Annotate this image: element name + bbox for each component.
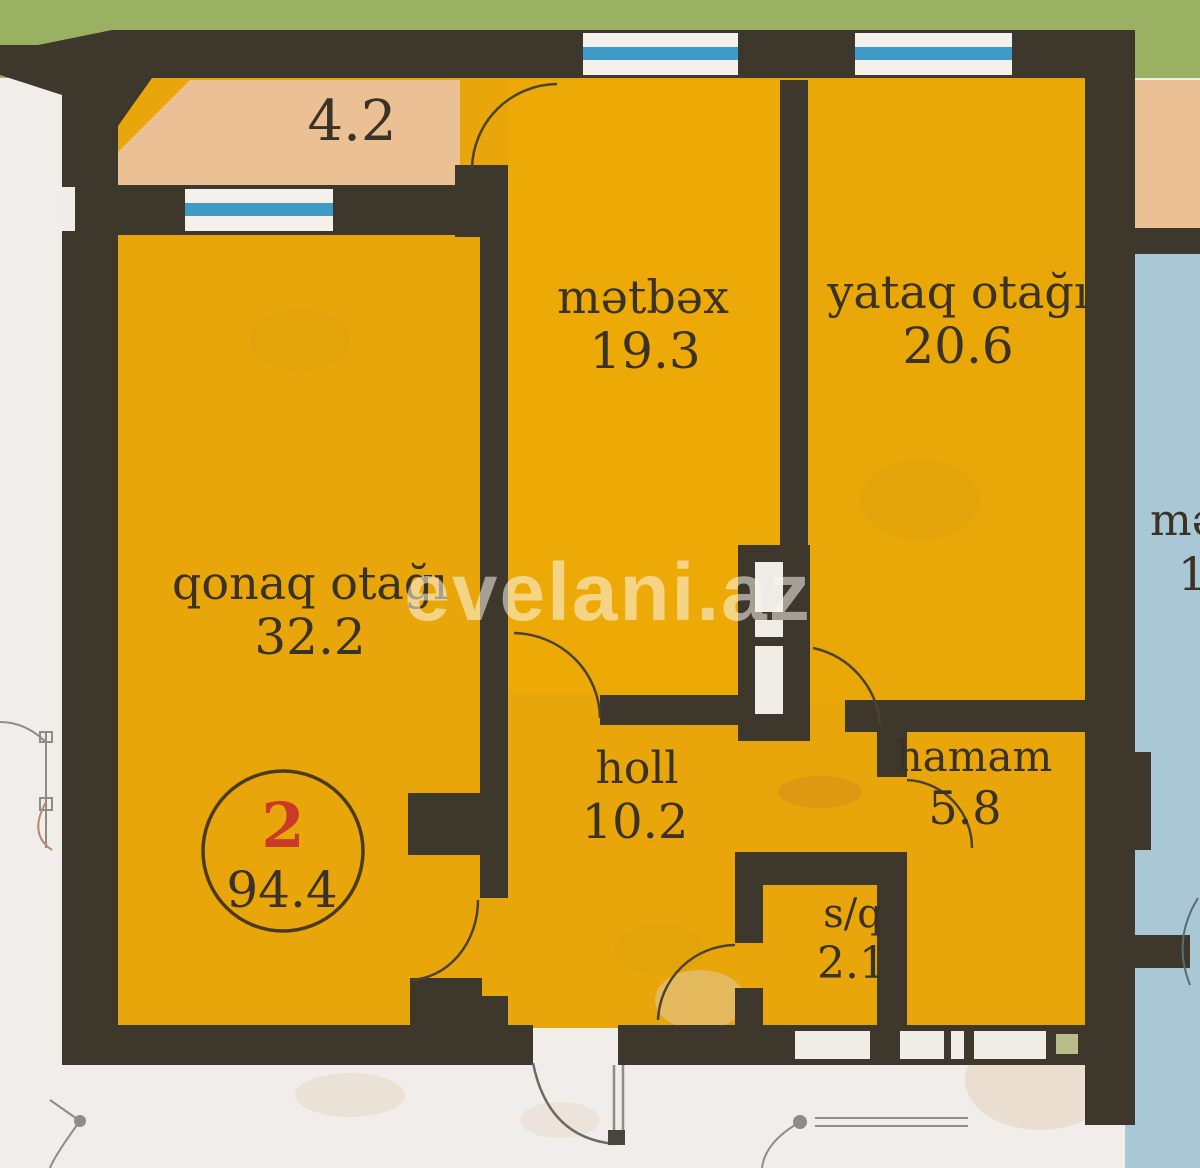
stain	[250, 310, 350, 370]
neighbor-balcony-area	[1135, 80, 1200, 230]
vent-slot	[900, 1031, 944, 1059]
wall-living-divider	[480, 165, 508, 898]
vent-slot-green	[1056, 1034, 1078, 1054]
kitchen-area: 19.3	[589, 322, 700, 380]
wc-label: s/q	[823, 891, 883, 937]
balcony-area-label: 4.2	[307, 89, 396, 154]
wall-living-divider-bottom	[480, 996, 508, 1028]
wc-area: 2.1	[817, 938, 887, 989]
bedroom-floor-tint	[808, 80, 1085, 700]
floorplan-photo: 4.2 mətbəx 19.3 yataq otağı 20.6 qonaq o…	[0, 0, 1200, 1168]
bathroom-area: 5.8	[928, 781, 1001, 835]
wall-stub-right-a	[1135, 752, 1151, 850]
vent-slot	[795, 1031, 870, 1059]
wall-pilaster-lower	[410, 978, 482, 1028]
kitchen-label: mətbəx	[557, 270, 729, 324]
window-glass	[583, 47, 738, 60]
vent-slot	[974, 1031, 1046, 1059]
hall-label: holl	[596, 743, 679, 794]
unit-total-area: 94.4	[226, 861, 337, 919]
living-room-window	[185, 189, 333, 231]
watermark-text: evelani.az	[404, 547, 811, 638]
stain	[615, 925, 705, 975]
bathroom-label: hamam	[896, 732, 1053, 781]
unit-number: 2	[261, 789, 304, 862]
wall-bottom-middle	[618, 1025, 790, 1065]
wall-neighbor-divider	[1135, 228, 1200, 254]
entrance-door-hinge	[608, 1130, 625, 1145]
wall-kitchen-bedroom	[780, 80, 808, 550]
window-glass	[185, 203, 333, 216]
stain	[655, 970, 745, 1030]
wall-right	[1085, 30, 1135, 1125]
wall-wc-top	[735, 852, 907, 885]
shaft-slot	[755, 646, 783, 714]
wall-bathroom-top	[845, 700, 1085, 732]
floorplan-drawing: 4.2 mətbəx 19.3 yataq otağı 20.6 qonaq o…	[0, 0, 1200, 1168]
stain	[295, 1073, 405, 1117]
wall-wc-left-lower	[735, 988, 763, 1025]
stain	[778, 776, 862, 808]
neighbor-room-label: mə	[1150, 495, 1200, 546]
hall-area: 10.2	[582, 794, 689, 850]
neighbor-room-area	[1125, 254, 1200, 1168]
left-wall-notch	[62, 187, 75, 231]
wall-left	[62, 122, 118, 1065]
neighbor-room-area: 19	[1178, 547, 1200, 601]
kitchen-window	[583, 33, 738, 75]
wall-pilaster-upper	[408, 793, 482, 855]
living-room-area: 32.2	[254, 608, 365, 666]
bedroom-area: 20.6	[902, 317, 1013, 375]
window-glass	[855, 47, 1012, 60]
stain	[860, 460, 980, 540]
vent-grate-slots	[795, 1031, 1078, 1059]
vent-slot	[951, 1031, 964, 1059]
bedroom-label: yataq otağı	[826, 265, 1088, 319]
wall-wc-left-upper	[735, 885, 763, 943]
wall-bottom-left	[62, 1025, 533, 1065]
bedroom-window	[855, 33, 1012, 75]
